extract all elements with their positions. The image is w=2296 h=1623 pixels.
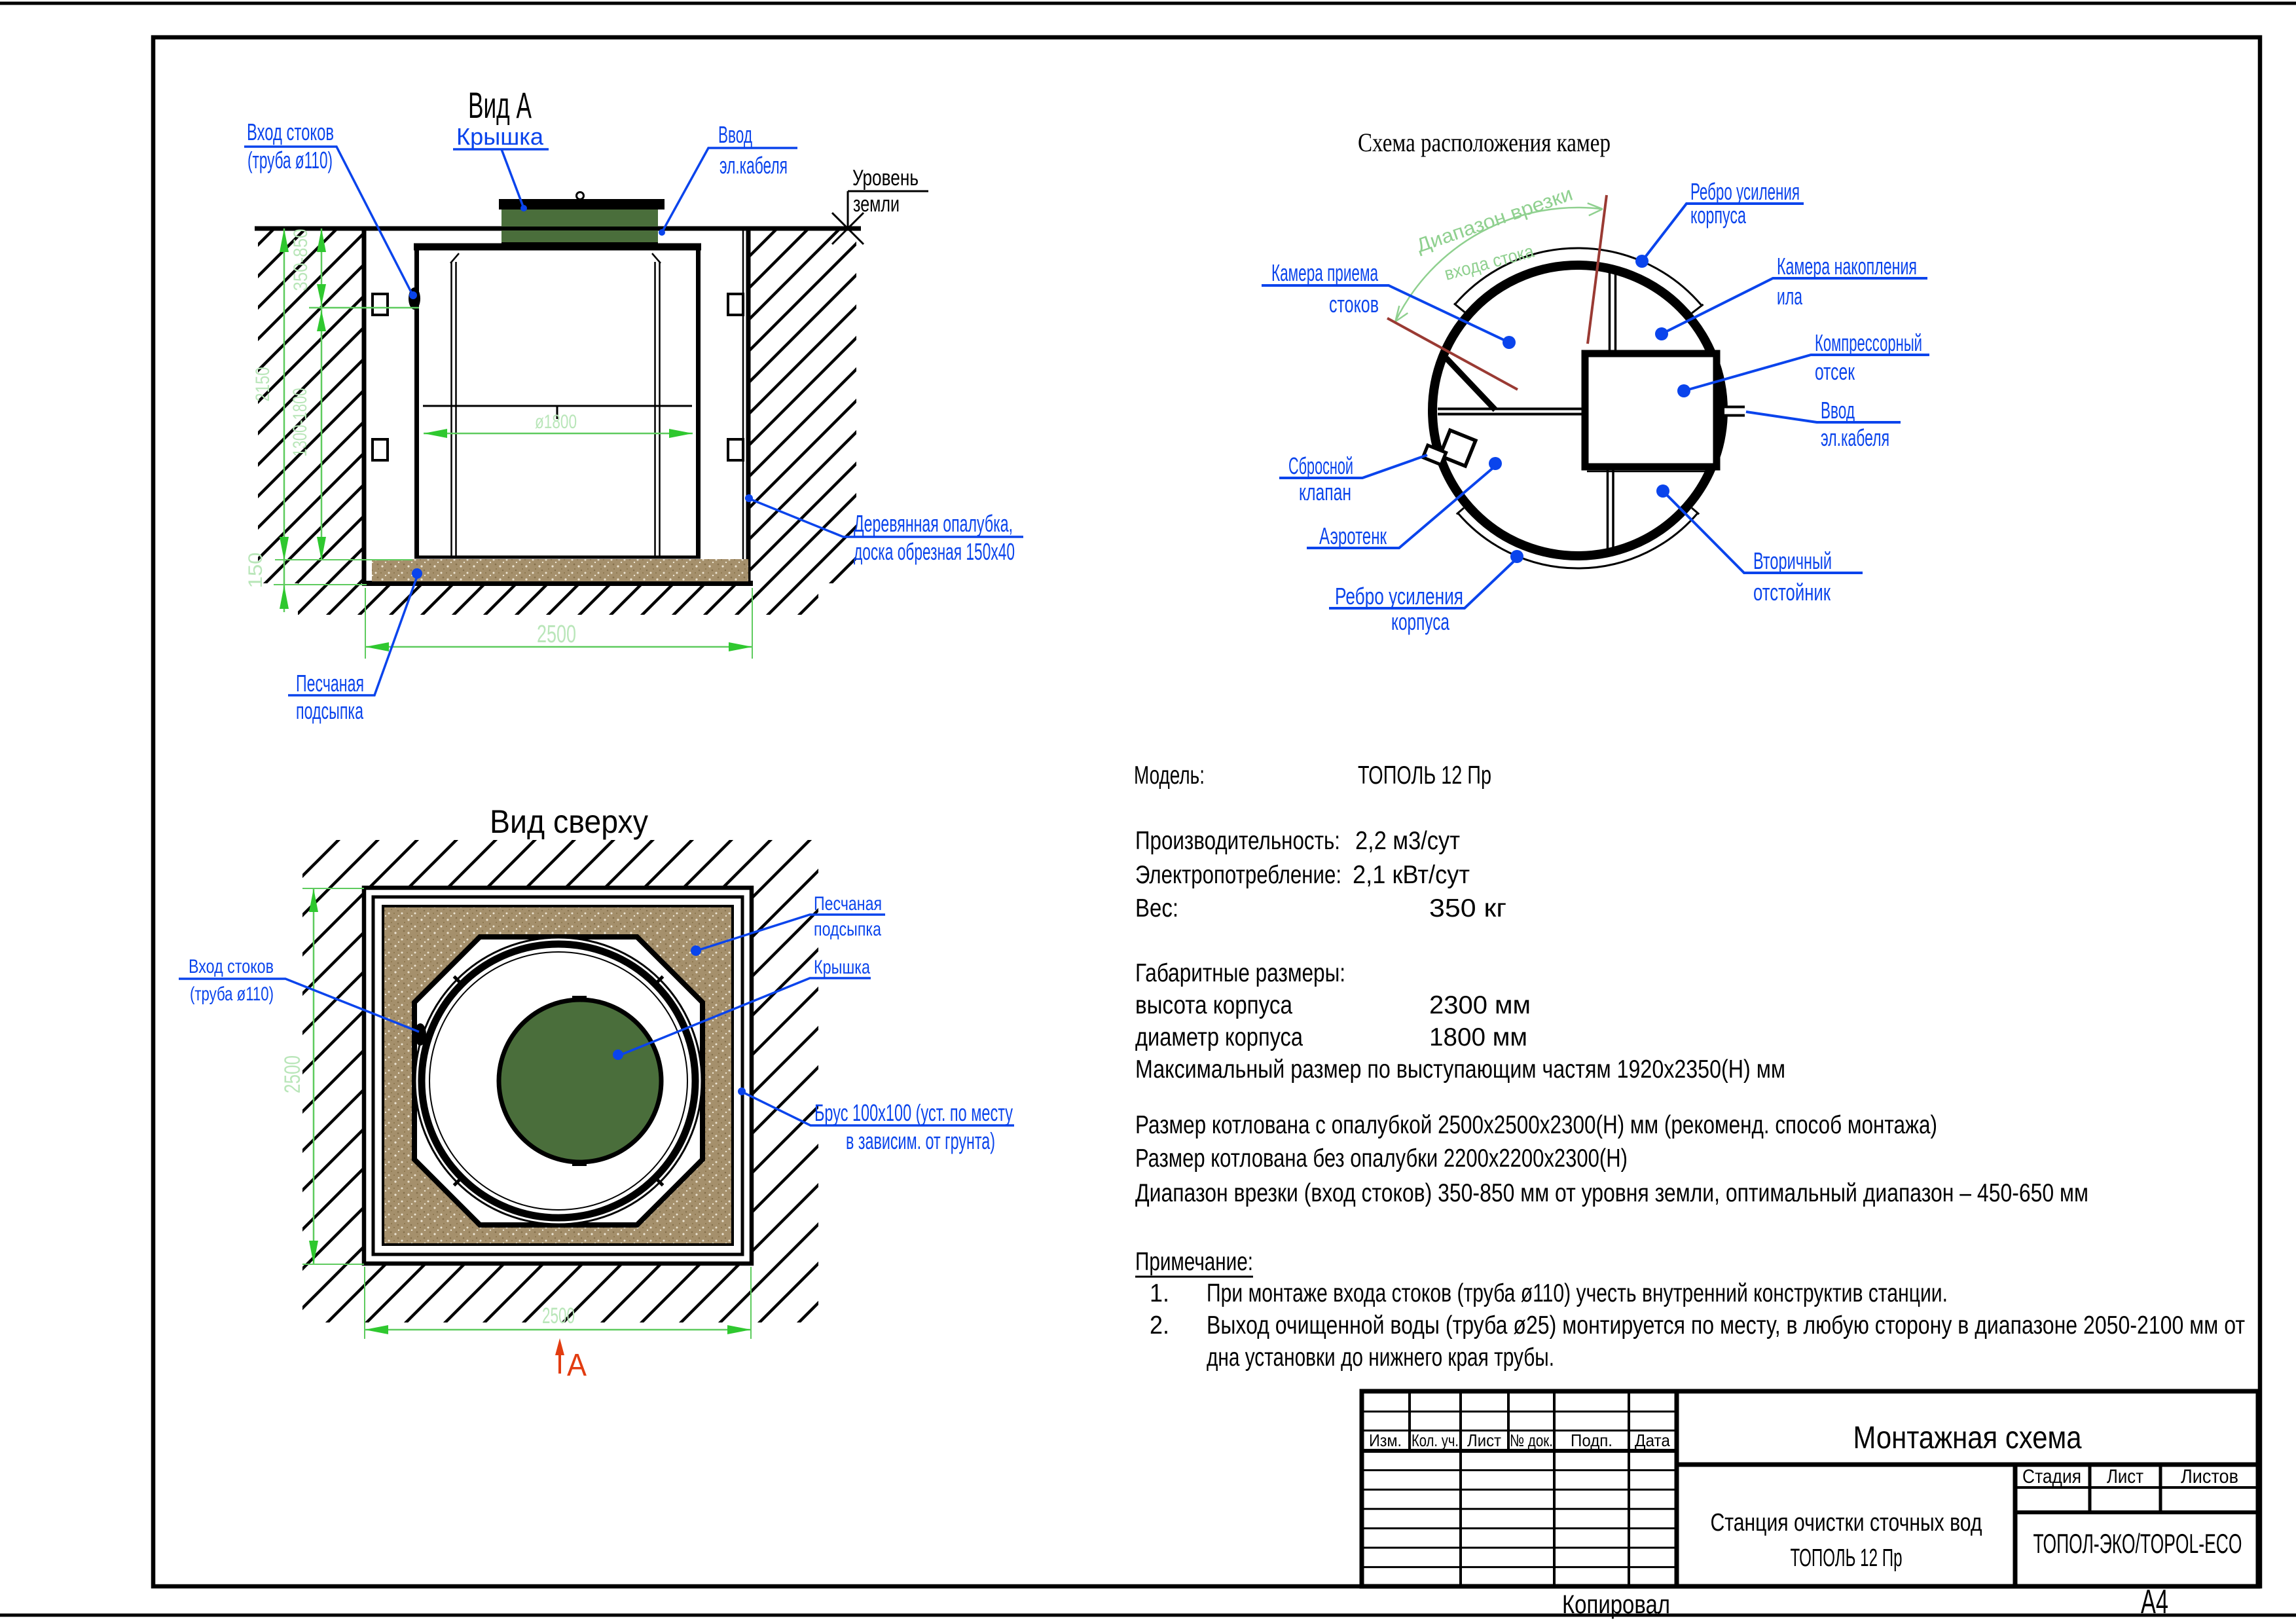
svg-text:дна установки до нижнего края: дна установки до нижнего края трубы. [1207, 1343, 1554, 1372]
svg-text:эл.кабеля: эл.кабеля [1821, 424, 1889, 451]
svg-text:Песчаная: Песчаная [814, 893, 882, 915]
svg-text:высота корпуса: высота корпуса [1135, 991, 1292, 1019]
svg-text:подсыпка: подсыпка [814, 919, 881, 940]
svg-text:Стадия: Стадия [2022, 1466, 2081, 1487]
svg-text:ила: ила [1777, 283, 1803, 310]
svg-text:Брус 100х100 (уст. по месту: Брус 100х100 (уст. по месту [814, 1099, 1013, 1126]
svg-text:Модель:: Модель: [1134, 761, 1205, 790]
svg-text:Крышка: Крышка [814, 957, 870, 978]
svg-text:2.: 2. [1150, 1311, 1169, 1340]
svg-text:Вход стоков: Вход стоков [189, 956, 274, 977]
svg-text:1800 мм: 1800 мм [1429, 1023, 1527, 1051]
svg-text:Вид А: Вид А [468, 84, 532, 126]
svg-text:350-850: 350-850 [290, 229, 312, 291]
svg-text:Монтажная схема: Монтажная схема [1853, 1421, 2082, 1455]
svg-text:2500: 2500 [280, 1055, 305, 1093]
svg-text:Ввод: Ввод [718, 121, 752, 148]
svg-text:Листов: Листов [2181, 1466, 2238, 1487]
svg-text:Ребро усиления: Ребро усиления [1335, 583, 1463, 610]
svg-text:земли: земли [853, 192, 900, 217]
svg-text:корпуса: корпуса [1391, 608, 1450, 635]
svg-text:эл.кабеля: эл.кабеля [720, 152, 788, 179]
svg-text:корпуса: корпуса [1690, 202, 1747, 228]
svg-text:Габаритные размеры:: Габаритные размеры: [1135, 959, 1345, 987]
svg-text:Электропотребление:: Электропотребление: [1135, 861, 1341, 889]
svg-text:клапан: клапан [1299, 479, 1351, 505]
svg-text:(труба ø110): (труба ø110) [247, 147, 333, 173]
svg-text:Выход очищенной воды (труба ø2: Выход очищенной воды (труба ø25) монтиру… [1207, 1311, 2245, 1340]
svg-text:Подп.: Подп. [1571, 1431, 1613, 1450]
svg-text:Схема расположения камер: Схема расположения камер [1358, 128, 1611, 157]
svg-text:Вид сверху: Вид сверху [490, 803, 648, 840]
svg-text:350 кг: 350 кг [1429, 894, 1506, 922]
svg-text:Уровень: Уровень [852, 166, 919, 191]
svg-text:2500: 2500 [542, 1304, 575, 1328]
svg-text:2,2 м3/сут: 2,2 м3/сут [1355, 827, 1460, 855]
svg-text:Диапазон врезки (вход стоков): Диапазон врезки (вход стоков) 350-850 мм… [1135, 1179, 2088, 1207]
svg-text:2150: 2150 [252, 367, 274, 402]
svg-text:Аэротенк: Аэротенк [1319, 522, 1387, 549]
svg-text:Ребро усиления: Ребро усиления [1690, 178, 1800, 205]
svg-text:А: А [567, 1348, 587, 1383]
svg-text:Копировал: Копировал [1562, 1590, 1670, 1619]
svg-text:отстойник: отстойник [1753, 579, 1831, 606]
svg-text:стоков: стоков [1329, 291, 1379, 318]
svg-text:Песчаная: Песчаная [296, 670, 364, 697]
svg-text:Лист: Лист [2107, 1466, 2143, 1487]
svg-text:Деревянная опалубка,: Деревянная опалубка, [854, 510, 1013, 537]
svg-text:Станция очистки сточных вод: Станция очистки сточных вод [1711, 1509, 1982, 1537]
svg-text:№ док.: № док. [1510, 1431, 1553, 1450]
svg-text:1300-1800: 1300-1800 [289, 388, 311, 457]
svg-text:Вторичный: Вторичный [1753, 547, 1832, 574]
svg-text:Камера приема: Камера приема [1271, 259, 1379, 286]
svg-text:1.: 1. [1150, 1279, 1169, 1307]
svg-text:2500: 2500 [537, 621, 576, 648]
svg-text:При монтаже входа стоков (тру: При монтаже входа стоков (труба ø110) уч… [1207, 1279, 1948, 1307]
svg-text:Вес:: Вес: [1135, 894, 1178, 922]
svg-text:Размер котлована с опалубкой 2: Размер котлована с опалубкой 2500х2500х2… [1135, 1111, 1937, 1139]
svg-text:А4: А4 [2141, 1583, 2168, 1621]
svg-text:диаметр корпуса: диаметр корпуса [1135, 1023, 1303, 1051]
svg-text:2300 мм: 2300 мм [1429, 991, 1531, 1019]
svg-text:Кол. уч.: Кол. уч. [1412, 1431, 1459, 1450]
svg-text:подсыпка: подсыпка [296, 697, 364, 724]
svg-text:Камера накопления: Камера накопления [1777, 253, 1917, 280]
svg-text:Сбросной: Сбросной [1288, 452, 1353, 479]
svg-text:Максимальный размер по выступа: Максимальный размер по выступающим частя… [1135, 1055, 1785, 1084]
svg-text:Вход стоков: Вход стоков [247, 119, 334, 145]
svg-text:2,1 кВт/сут: 2,1 кВт/сут [1353, 861, 1470, 889]
svg-text:ø1800: ø1800 [535, 411, 577, 433]
svg-text:Изм.: Изм. [1369, 1431, 1402, 1450]
svg-text:Ввод: Ввод [1821, 397, 1855, 424]
svg-text:Дата: Дата [1635, 1431, 1671, 1450]
svg-text:Примечание:: Примечание: [1135, 1248, 1253, 1276]
svg-text:Размер котлована без опалубки: Размер котлована без опалубки 2200х2200х… [1135, 1144, 1628, 1173]
svg-text:в зависим. от грунта): в зависим. от грунта) [846, 1127, 995, 1154]
svg-text:ТОПОЛЬ 12 Пр: ТОПОЛЬ 12 Пр [1791, 1544, 1903, 1572]
svg-text:(труба ø110): (труба ø110) [190, 983, 274, 1005]
svg-text:отсек: отсек [1815, 358, 1855, 385]
svg-text:Лист: Лист [1467, 1431, 1501, 1450]
svg-text:ТОПОЛЬ 12 Пр: ТОПОЛЬ 12 Пр [1358, 761, 1491, 790]
svg-text:150: 150 [245, 553, 266, 589]
svg-text:Крышка: Крышка [456, 123, 544, 150]
svg-text:Компрессорный: Компрессорный [1815, 329, 1922, 356]
svg-text:доска обрезная 150х40: доска обрезная 150х40 [854, 538, 1015, 565]
svg-text:ТОПОЛ-ЭКО/TOPOL-ECO: ТОПОЛ-ЭКО/TOPOL-ECO [2033, 1528, 2242, 1559]
svg-text:Производительность:: Производительность: [1135, 827, 1340, 855]
